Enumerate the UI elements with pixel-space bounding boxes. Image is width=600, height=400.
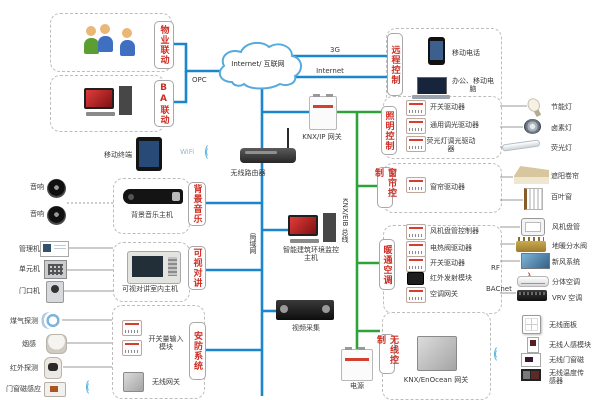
link-opc-label: OPC [192,76,222,84]
wireless-temp-sensor-icon [521,369,541,381]
wireless-control-label: 无线控制 [379,334,395,374]
rf-label: RF [491,264,507,272]
smoke-detector-label: 烟感 [12,340,36,348]
ba-linkage-label: BA联动 [154,80,174,127]
wireless-motion-sensor-icon [527,337,539,353]
ac-gateway-label: 空调网关 [430,290,486,298]
split-ac-icon [517,276,549,287]
universal-dimmer-icon [406,118,426,134]
ir-detector-label: 红外探测 [4,364,38,372]
door-station-icon [46,281,64,303]
roller-shade-label: 遮阳卷帘 [551,172,587,180]
unit-machine-label: 单元机 [10,265,40,273]
fluorescent-dimmer-label: 荧光灯调光驱动器 [426,137,476,154]
door-magnet-icon [44,382,66,397]
office-computer-label: 办公、移动电脑 [450,77,496,94]
manager-unit-icon [40,241,69,257]
wireless-door-magnet-label: 无线门窗磁 [549,356,593,364]
video-intercom-label: 可视对讲 [188,246,206,290]
door-magnet-label: 门窗磁感应 [1,385,41,393]
curtain-actuator-icon [406,177,426,193]
wifi-label: WiFi [180,148,204,156]
speaker-label: 音响 [18,183,44,191]
halogen-lamp-label: 卤素灯 [551,124,583,132]
switch-actuator-label: 开关驱动器 [430,259,486,267]
gas-detector-icon [40,312,60,329]
input-module-icon [122,340,142,356]
curtain-actuator-label: 窗帘驱动器 [430,183,478,191]
laptop-icon [412,77,450,99]
mobile-phone-icon [428,37,445,65]
power-supply-label: 电源 [344,382,370,390]
fresh-air-system-label: 新风系统 [552,258,590,266]
manager-unit-label: 管理机 [10,245,40,253]
power-supply-icon [341,349,373,381]
knx-ip-gateway-icon [309,96,337,130]
building-host-icon [288,213,336,249]
floor-heating-manifold-icon [516,241,546,252]
wireless-panel-icon [522,315,541,334]
ir-detector-icon [44,357,62,379]
knx-ip-gateway-label: KNX/IP 网关 [294,133,350,141]
unit-machine-icon [44,260,67,279]
fan-coil-controller-icon [406,224,426,240]
floor-heating-manifold-label: 地暖分水阀 [552,242,594,250]
speaker-icon [47,179,66,198]
heating-valve-actuator-label: 电热阀驱动器 [430,244,486,252]
ba-computer-icon [84,86,132,122]
vrv-ac-icon [517,290,547,301]
mobile-terminal-label: 移动终端 [94,151,132,159]
connection-lines [0,0,600,400]
wireless-router-icon [240,148,296,163]
split-ac-label: 分体空调 [552,278,590,286]
lighting-control-label: 照明控制 [381,106,397,155]
wireless-waves-icon [492,345,507,363]
intercom-host-label: 可视对讲室内主机 [118,285,182,293]
video-capture-icon [276,300,334,320]
wireless-motion-sensor-label: 无线人感模块 [549,341,597,349]
switch-actuator-icon [406,256,426,272]
enocean-gateway-icon [417,336,457,371]
venetian-blind-label: 百叶窗 [551,193,583,201]
music-host-label: 背景音乐主机 [126,211,178,219]
switch-actuator-icon [406,100,426,116]
smoke-detector-icon [46,334,67,354]
tablet-icon [136,137,162,171]
video-capture-label: 视频采集 [288,324,324,332]
wifi-waves-icon [203,143,218,161]
person-icon [98,24,113,52]
lan-label: 局域网 [248,233,258,254]
bacnet-label: BACnet [486,285,518,293]
security-wireless-gateway-label: 无线网关 [147,378,185,386]
ir-transmitter-label: 红外发射模块 [430,274,486,282]
wireless-panel-label: 无线面板 [549,321,589,329]
fluorescent-lamp-label: 荧光灯 [551,144,583,152]
wireless-door-magnet-icon [521,353,541,367]
intercom-host-icon [127,251,181,284]
person-icon [84,26,99,54]
link-3g-label: 3G [320,46,350,54]
speaker-icon [47,206,66,225]
wireless-temp-sensor-label: 无线温度传感器 [549,369,585,386]
enocean-gateway-label: KNX/EnOcean 网关 [398,376,474,384]
security-wireless-gateway-icon [123,372,144,392]
smart-building-knx-diagram: Internet/ 互联网 物业联动 BA联动 远程控制 照明控制 窗帘控制 暖… [0,0,600,400]
hvac-control-label: 暖通空调 [379,239,395,290]
vrv-ac-label: VRV 空调 [552,294,594,302]
background-music-label: 背景音乐 [188,182,206,226]
wireless-router-label: 无线路由器 [220,169,276,177]
halogen-lamp-icon [524,119,541,134]
internet-cloud-label: Internet/ 互联网 [224,59,292,69]
energy-saving-lamp-label: 节能灯 [551,103,583,111]
link-internet-label: Internet [308,67,352,75]
music-host-icon [123,189,183,204]
remote-control-label: 远程控制 [387,33,403,96]
knx-bus-label: KNX/EIB 总线 [340,198,350,243]
universal-dimmer-label: 通用调光驱动器 [430,121,490,129]
fan-coil-icon [521,218,545,236]
door-station-label: 门口机 [10,287,40,295]
person-headset-icon [120,28,135,56]
venetian-blind-icon [524,188,543,210]
ir-transmitter-icon [407,272,424,285]
input-module-label: 开关量输入模块 [147,335,185,352]
security-system-label: 安防系统 [189,322,206,380]
fan-coil-label: 风机盘管 [552,223,590,231]
mobile-phone-label: 移动电话 [452,49,492,57]
gas-detector-label: 煤气探测 [4,317,38,325]
heating-valve-actuator-icon [406,241,426,257]
fluorescent-dimmer-icon [406,136,426,152]
fan-coil-controller-label: 风机盘管控制器 [430,227,490,235]
curtain-control-label: 窗帘控制 [377,167,393,208]
speaker-label: 音响 [18,210,44,218]
switch-actuator-label: 开关驱动器 [430,103,486,111]
property-linkage-label: 物业联动 [154,21,174,69]
fresh-air-system-icon [521,253,550,269]
ac-gateway-icon [406,287,426,303]
input-module-icon [122,320,142,336]
wireless-waves-icon [84,378,99,396]
building-host-label: 智能建筑环境监控主机 [280,246,342,263]
